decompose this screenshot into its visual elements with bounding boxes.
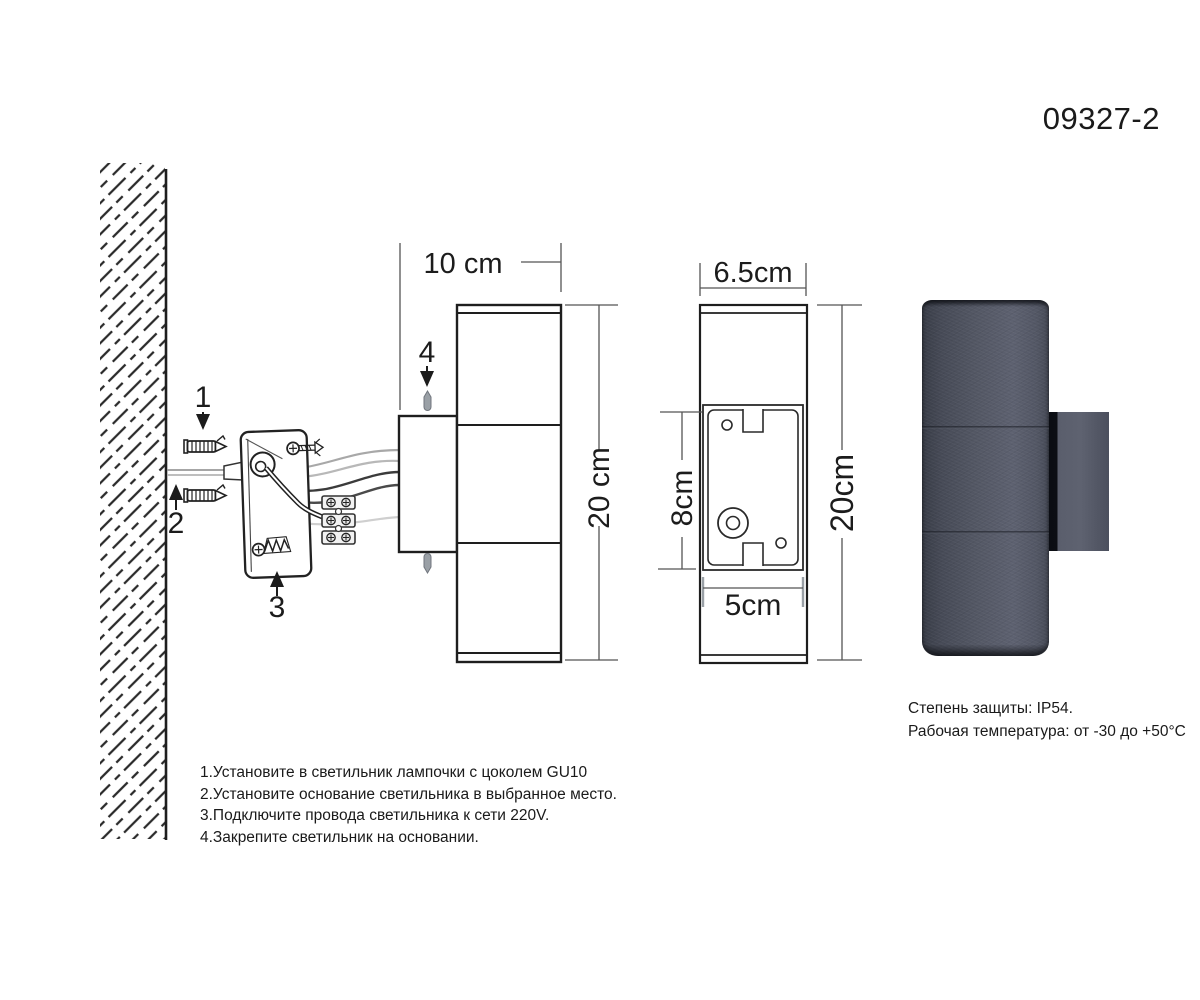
- instruction-step-1: 1.Установите в светильник лампочки с цок…: [200, 762, 617, 784]
- callout-step4: 4: [419, 336, 436, 369]
- callout-step2: 2: [168, 507, 185, 540]
- fixture-base-box: [399, 416, 457, 552]
- instruction-step-4: 4.Закрепите светильник на основании.: [200, 827, 617, 849]
- wall-hatch: [100, 163, 165, 839]
- screw-hole-top: [722, 420, 732, 430]
- cable-grommet: [256, 461, 266, 471]
- dim-width-label: 6.5cm: [714, 257, 793, 289]
- instruction-step-3: 3.Подключите провода светильника к сети …: [200, 805, 617, 827]
- dim-front-height-label: 20cm: [824, 454, 860, 532]
- product-photo-bracket: [1046, 412, 1109, 551]
- lamp-seam-lower: [922, 531, 1049, 534]
- screw-hole-bottom: [776, 538, 786, 548]
- callout-step1: 1: [195, 381, 212, 414]
- product-photo-lamp: [922, 300, 1049, 656]
- lamp-top-edge: [924, 300, 1047, 307]
- model-number: 09327-2: [1018, 101, 1160, 137]
- mains-wire: [167, 462, 243, 480]
- dim-depth-label: 10 cm: [424, 248, 503, 280]
- wire-connector: [224, 462, 243, 480]
- front-view-drawing: 6.5cm 8cm 5cm 20cm: [658, 257, 862, 663]
- wall-anchor-bottom-icon: [184, 485, 226, 502]
- spec-protection: Степень защиты: IP54.: [908, 697, 1186, 720]
- backplate-bottom-notch: [743, 543, 763, 566]
- spec-block: Степень защиты: IP54. Рабочая температур…: [908, 697, 1186, 743]
- fixture-body-outline: [457, 305, 561, 662]
- side-view-drawing: 4 10 cm 20 cm: [399, 243, 618, 662]
- instruction-step-2: 2.Установите основание светильника в выб…: [200, 784, 617, 806]
- spec-temperature: Рабочая температура: от -30 до +50°C: [908, 720, 1186, 743]
- terminal-blocks: [322, 496, 355, 544]
- dim-height-label: 20 cm: [583, 447, 616, 529]
- fixing-pin-bottom: [424, 554, 431, 573]
- dim-plate-width-label: 5cm: [725, 589, 782, 622]
- installation-diagram: 1 2: [0, 0, 1200, 1000]
- wall-anchor-top-icon: [184, 436, 226, 453]
- wall-section: [100, 163, 166, 840]
- cable-hole-inner: [727, 517, 740, 530]
- lamp-seam-upper: [922, 426, 1049, 429]
- lamp-bottom-rim: [923, 645, 1048, 656]
- dim-plate-height-label: 8cm: [666, 470, 699, 527]
- fixing-pin-top: [424, 391, 431, 411]
- backplate-top-notch: [743, 409, 763, 432]
- instruction-list: 1.Установите в светильник лампочки с цок…: [200, 762, 617, 848]
